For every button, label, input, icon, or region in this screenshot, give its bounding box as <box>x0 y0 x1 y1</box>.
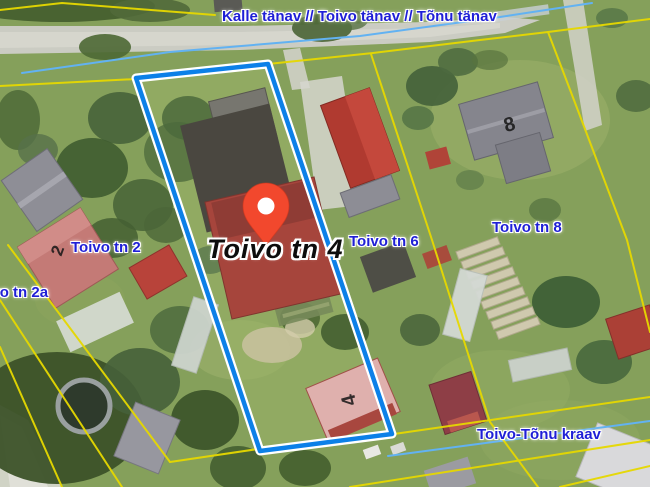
round-pool <box>58 380 110 432</box>
parcel-label-tn8: Toivo tn 8 <box>492 220 562 235</box>
parcel-label-tn2a: Toivo tn 2a <box>0 285 48 300</box>
ditch-label: Toivo-Tõnu kraav <box>477 427 601 442</box>
selected-parcel-label: Toivo tn 4 <box>207 236 344 263</box>
street-name-label: Kalle tänav // Toivo tänav // Tõnu tänav <box>222 9 497 24</box>
parcel-label-tn2: Toivo tn 2 <box>71 240 141 255</box>
parcel-label-tn6: Toivo tn 6 <box>349 234 419 249</box>
map-viewport[interactable]: Kalle tänav // Toivo tänav // Tõnu tänav… <box>0 0 650 487</box>
